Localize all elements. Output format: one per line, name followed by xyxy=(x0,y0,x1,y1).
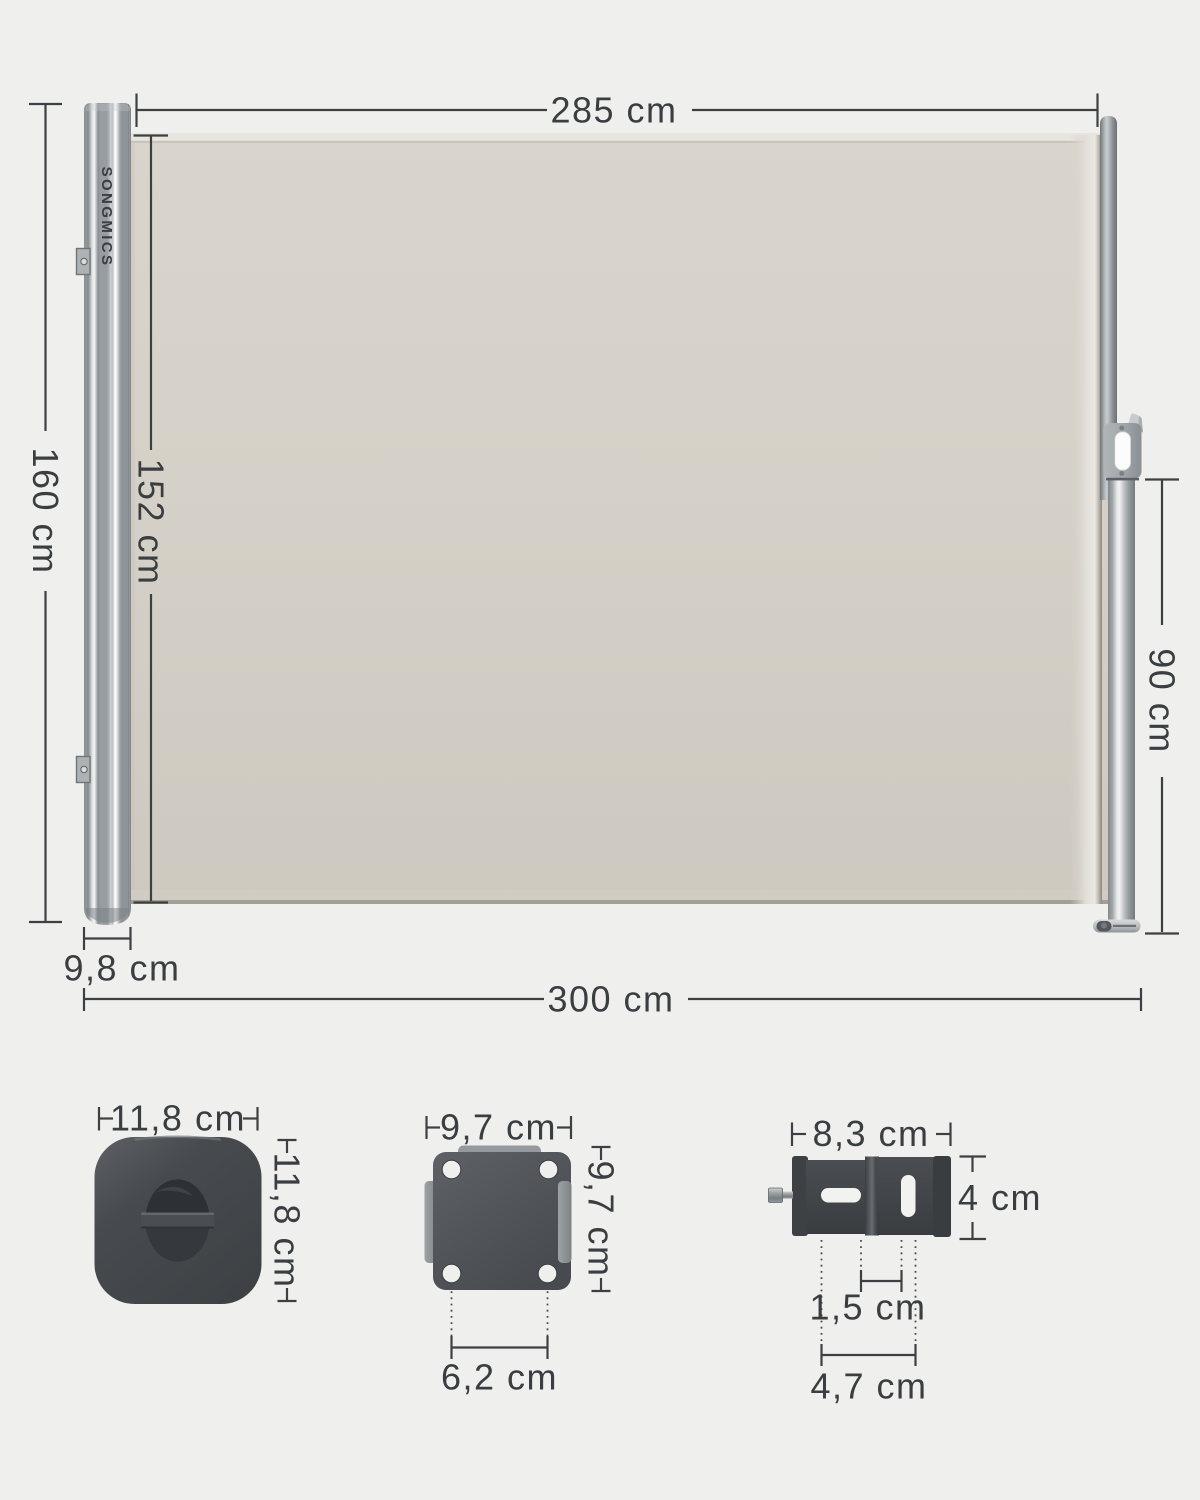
svg-text:160 cm: 160 cm xyxy=(25,447,66,574)
svg-text:4,7 cm: 4,7 cm xyxy=(810,1366,927,1407)
svg-text:9,7 cm: 9,7 cm xyxy=(440,1107,557,1148)
svg-text:90 cm: 90 cm xyxy=(1142,648,1183,754)
svg-text:6,2 cm: 6,2 cm xyxy=(441,1357,558,1398)
svg-text:1,5 cm: 1,5 cm xyxy=(809,1287,926,1328)
svg-text:11,8 cm: 11,8 cm xyxy=(110,1098,246,1139)
svg-text:SONGMICS: SONGMICS xyxy=(98,167,115,268)
svg-text:152 cm: 152 cm xyxy=(131,458,172,585)
svg-text:4 cm: 4 cm xyxy=(958,1177,1042,1218)
svg-text:11,8 cm: 11,8 cm xyxy=(267,1153,308,1289)
svg-text:9,8 cm: 9,8 cm xyxy=(63,948,180,989)
svg-text:285 cm: 285 cm xyxy=(550,90,677,131)
svg-text:8,3 cm: 8,3 cm xyxy=(812,1113,929,1154)
svg-text:9,7 cm: 9,7 cm xyxy=(581,1160,622,1277)
svg-text:300 cm: 300 cm xyxy=(547,979,674,1020)
